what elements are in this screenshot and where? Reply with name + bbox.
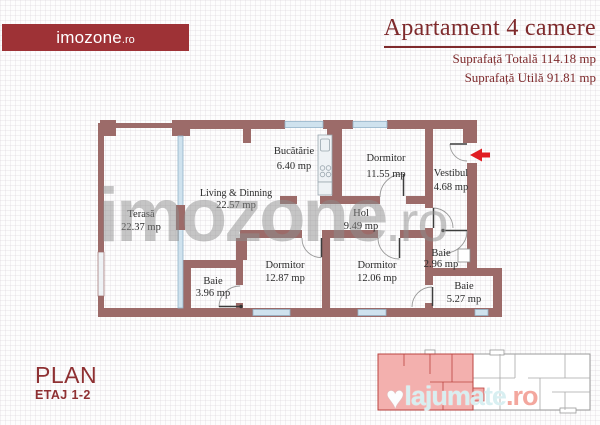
mini-plan-unit-annex <box>473 388 484 401</box>
room-area-living: 22.57 mp <box>216 200 256 211</box>
room-label-dormitor-3: Dormitor <box>357 260 397 271</box>
room-area-baie-3: 5.27 mp <box>447 294 481 305</box>
room-label-dormitor-2: Dormitor <box>265 260 305 271</box>
terrace-rail-window <box>98 252 104 296</box>
room-label-bucatarie: Bucătărie <box>274 146 315 157</box>
surface-total-label: Suprafață Totală 114.18 mp <box>384 51 596 67</box>
utility-shaft <box>458 249 470 262</box>
room-area-dormitor-3: 12.06 mp <box>357 273 397 284</box>
plan-level-caption: PLAN ETAJ 1-2 <box>35 364 97 402</box>
surface-util-label: Suprafață Utilă 91.81 mp <box>384 70 596 86</box>
room-label-terasa: Terasă <box>127 209 155 220</box>
listing-header: Apartament 4 camere Suprafață Totală 114… <box>384 15 596 86</box>
room-area-bucatarie: 6.40 mp <box>277 161 311 172</box>
room-area-dormitor-1: 11.55 mp <box>366 169 405 180</box>
room-label-living: Living & Dinning <box>200 188 272 199</box>
room-area-vestibul: 4.68 mp <box>434 182 468 193</box>
room-label-baie-2: Baie <box>431 248 451 259</box>
floor-label: ETAJ 1-2 <box>35 389 97 402</box>
room-area-baie-1: 3.96 mp <box>196 288 230 299</box>
glass-wall-frame <box>176 205 185 230</box>
room-label-baie-1: Baie <box>203 276 223 287</box>
page-title: Apartament 4 camere <box>384 15 596 48</box>
room-label-vestibul: Vestibul <box>434 168 469 179</box>
room-label-baie-3: Baie <box>454 281 474 292</box>
mini-plan <box>378 350 590 413</box>
room-label-dormitor-1: Dormitor <box>366 153 406 164</box>
door-hinge-dot <box>239 305 242 308</box>
room-area-hol: 9.49 mp <box>344 221 378 232</box>
plan-label: PLAN <box>35 364 97 387</box>
room-area-dormitor-2: 12.87 mp <box>265 273 305 284</box>
room-area-baie-2: 2.96 mp <box>424 259 458 270</box>
listing-image: { "brand": { "logo_text": "imozone", "lo… <box>0 0 600 425</box>
kitchen-counter-icon <box>318 135 332 195</box>
room-label-hol: Hol <box>353 208 369 219</box>
entrance-arrow-icon <box>470 149 490 162</box>
room-area-terasa: 22.37 mp <box>121 222 161 233</box>
door-hinge-dot <box>441 229 444 232</box>
